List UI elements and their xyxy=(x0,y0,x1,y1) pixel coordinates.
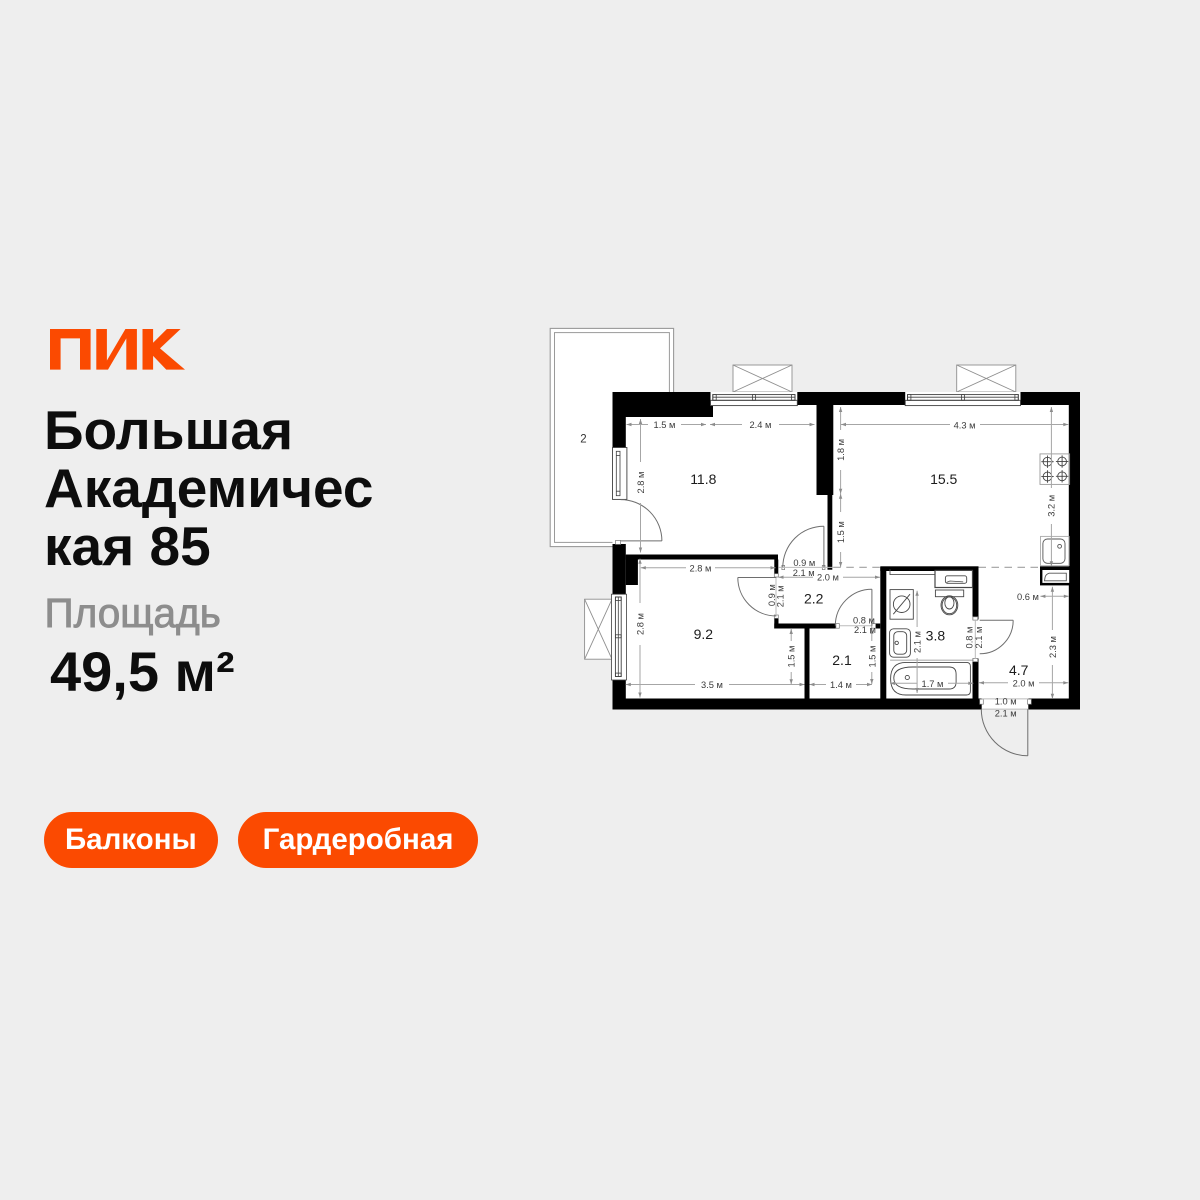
svg-text:2.8 м: 2.8 м xyxy=(636,613,646,635)
svg-text:2.1: 2.1 xyxy=(832,652,852,668)
svg-text:1.5 м: 1.5 м xyxy=(867,646,877,668)
svg-text:2.4 м: 2.4 м xyxy=(749,420,771,430)
svg-text:3.8: 3.8 xyxy=(926,628,946,644)
svg-text:1.4 м: 1.4 м xyxy=(830,680,852,690)
svg-text:2.1 м: 2.1 м xyxy=(775,585,785,607)
svg-text:2: 2 xyxy=(580,434,586,446)
svg-text:2.8 м: 2.8 м xyxy=(690,563,712,573)
svg-text:3.5 м: 3.5 м xyxy=(701,680,723,690)
svg-text:2.1 м: 2.1 м xyxy=(995,708,1017,718)
svg-text:2.1 м: 2.1 м xyxy=(913,631,923,653)
svg-text:2.0 м: 2.0 м xyxy=(817,573,839,583)
svg-text:2.1 м: 2.1 м xyxy=(854,625,876,635)
svg-text:2.0 м: 2.0 м xyxy=(1013,678,1035,688)
svg-text:3.2 м: 3.2 м xyxy=(1047,495,1057,517)
svg-text:1.5 м: 1.5 м xyxy=(787,646,797,668)
svg-text:1.0 м: 1.0 м xyxy=(995,697,1017,707)
svg-text:2.8 м: 2.8 м xyxy=(636,472,646,494)
svg-text:2.2: 2.2 xyxy=(804,591,824,607)
svg-text:0.9 м: 0.9 м xyxy=(793,558,815,568)
svg-text:15.5: 15.5 xyxy=(930,471,957,487)
svg-text:1.8 м: 1.8 м xyxy=(836,439,846,461)
svg-text:1.5 м: 1.5 м xyxy=(836,521,846,543)
svg-text:11.8: 11.8 xyxy=(690,471,716,487)
svg-text:1.5 м: 1.5 м xyxy=(654,420,676,430)
svg-text:0.8 м: 0.8 м xyxy=(853,615,875,625)
svg-text:2.3 м: 2.3 м xyxy=(1048,636,1058,658)
svg-text:9.2: 9.2 xyxy=(694,626,714,642)
svg-text:4.7: 4.7 xyxy=(1009,662,1029,678)
svg-text:2.1 м: 2.1 м xyxy=(793,568,815,578)
svg-text:0.6 м: 0.6 м xyxy=(1017,592,1039,602)
svg-text:2.1 м: 2.1 м xyxy=(974,627,984,649)
svg-text:4.3 м: 4.3 м xyxy=(954,421,976,431)
svg-text:1.7 м: 1.7 м xyxy=(922,679,944,689)
